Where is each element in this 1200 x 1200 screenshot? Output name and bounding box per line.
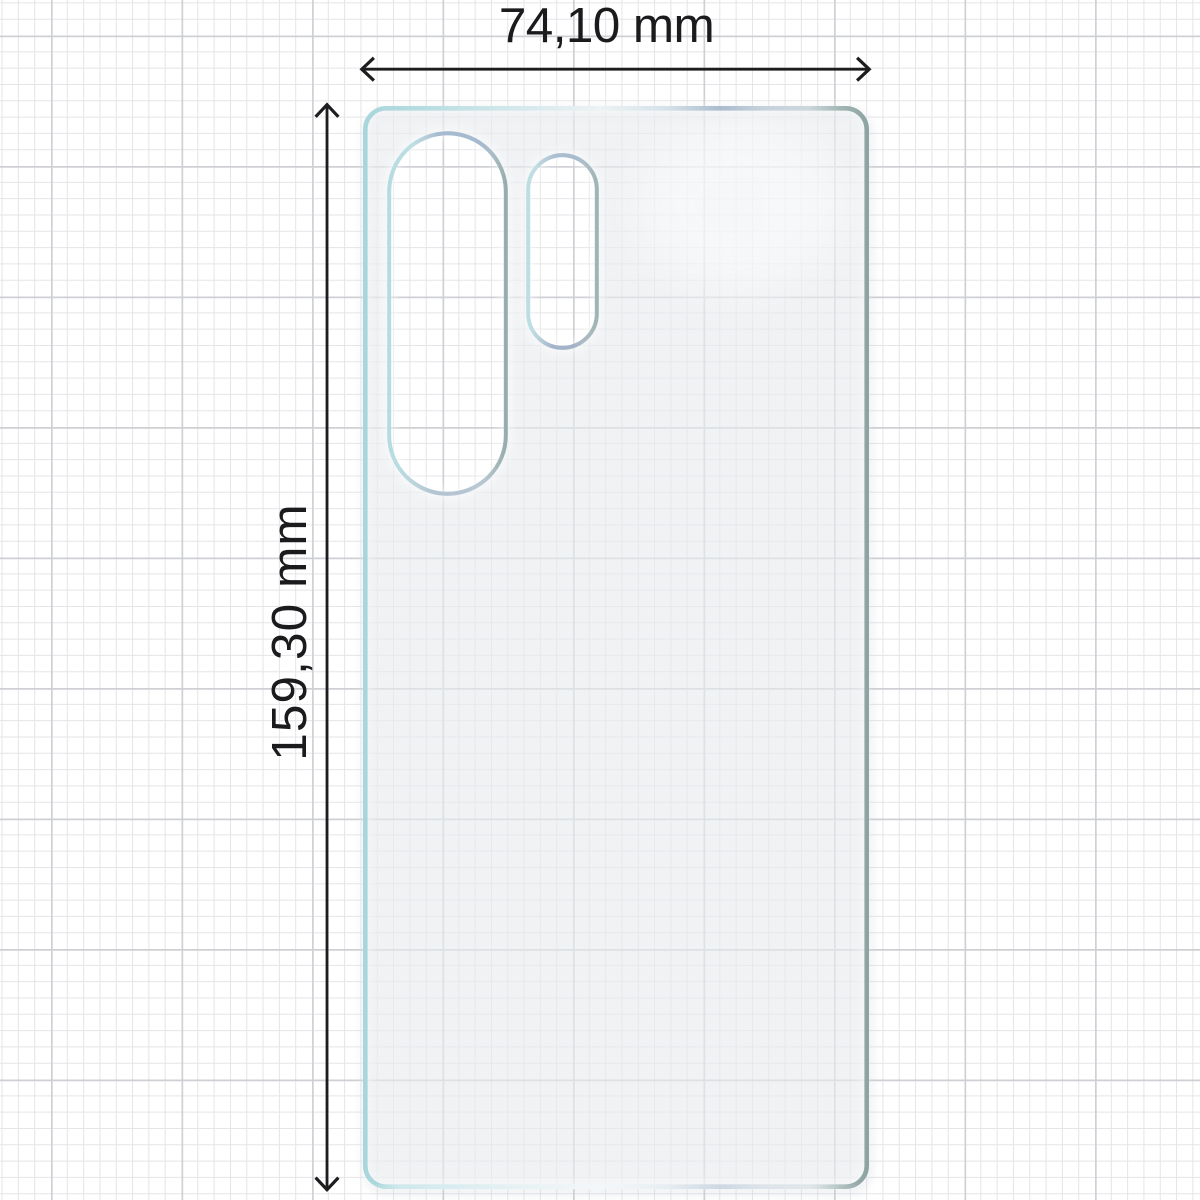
svg-text:159,30 mm: 159,30 mm — [262, 503, 317, 761]
svg-text:74,10 mm: 74,10 mm — [499, 0, 714, 53]
